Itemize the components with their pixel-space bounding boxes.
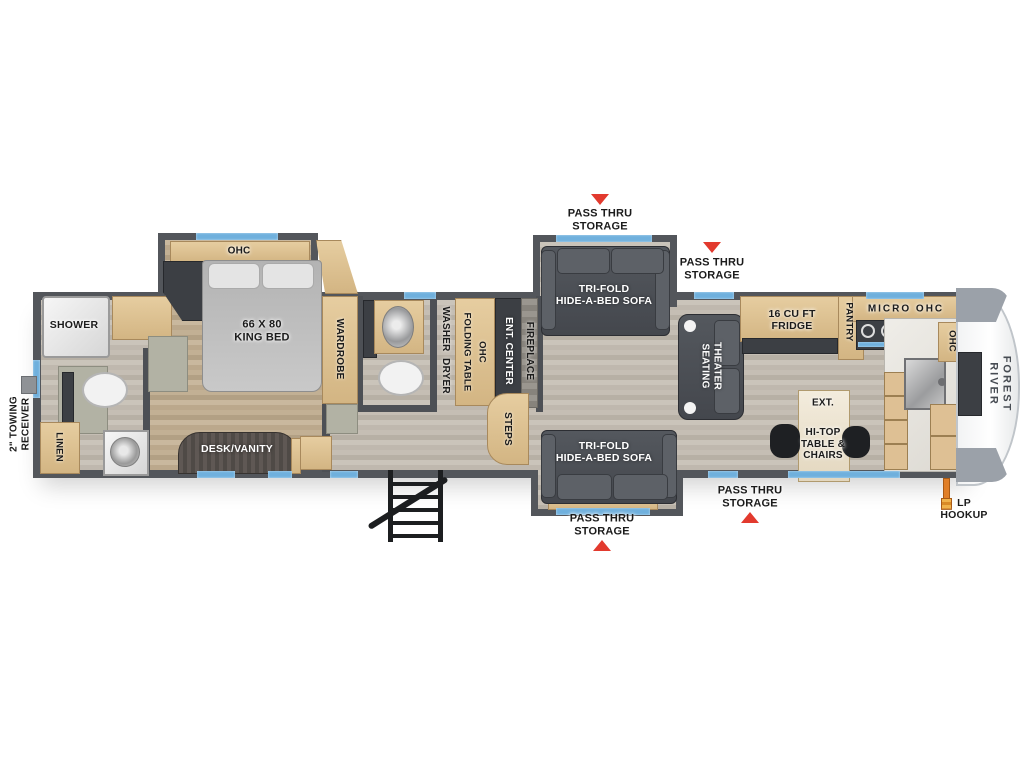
midbath-sink [382, 306, 414, 348]
window-bottom-3 [330, 471, 358, 478]
toilet-rear [82, 372, 128, 408]
label-lp-hookup: LP HOOKUP [940, 497, 987, 521]
theater-cupholder-bottom [684, 402, 696, 414]
sofa-bottom-back-right [613, 474, 668, 500]
label-fireplace: FIREPLACE [523, 322, 535, 380]
window-bottom-5 [788, 471, 900, 478]
sofa-top-back-left [557, 248, 610, 274]
label-theater-seating: THEATER SEATING [700, 342, 723, 390]
label-ent-center: ENT. CENTER [502, 317, 514, 385]
window-top-right-1 [694, 292, 734, 299]
label-pantry: PANTRY [843, 302, 854, 341]
label-folding-table: FOLDING TABLE [461, 313, 472, 392]
window-bottom-1 [197, 471, 235, 478]
label-king-bed: 66 X 80 KING BED [234, 318, 289, 343]
entry-steps-rung-5 [390, 534, 441, 538]
label-desk-vanity: DESK/VANITY [201, 443, 273, 455]
window-bottom-2 [268, 471, 292, 478]
burner-1 [861, 324, 875, 338]
label-pass-thru-bottom-right: PASS THRU STORAGE [718, 484, 783, 509]
label-micro-ohc: MICRO OHC [868, 303, 944, 315]
desk-end-panel [291, 438, 301, 474]
towing-receiver-hitch [21, 376, 37, 394]
fridge-base [742, 338, 838, 354]
label-pass-thru-bottom-center: PASS THRU STORAGE [570, 512, 635, 537]
sofa-top-back-right [611, 248, 664, 274]
kitchen-drawer-4 [884, 444, 908, 470]
sofa-top-arm-left [541, 250, 556, 330]
kitchen-faucet [938, 378, 946, 386]
window-sofa-slide-top [556, 235, 652, 242]
label-bedroom-ohc: OHC [228, 245, 251, 257]
toilet-mid [378, 360, 424, 396]
midbath-bottom-wall [356, 405, 437, 412]
label-shower: SHOWER [50, 319, 98, 331]
sofa-bottom-back-left [557, 474, 612, 500]
label-hitop-table: HI-TOP TABLE & CHAIRS [801, 427, 845, 462]
front-tv-cabinet [958, 352, 982, 416]
bath-cabinet [112, 296, 172, 340]
vanity-mirror [62, 372, 74, 426]
bedroom-corner-wardrobe [316, 240, 358, 294]
bedroom-dresser [148, 336, 188, 392]
window-bed-slide [196, 233, 278, 240]
hitop-chair-left [770, 424, 800, 458]
window-top-right-2 [866, 292, 924, 299]
midbath-right-wall [430, 296, 437, 412]
label-fridge: 16 CU FT FRIDGE [768, 308, 815, 332]
window-midbath-top [404, 292, 436, 299]
floorplan-canvas: PASS THRU STORAGE PASS THRU STORAGE PASS… [0, 0, 1024, 768]
window-bottom-4 [708, 471, 738, 478]
kitchen-drawer-3 [884, 420, 908, 444]
label-washer: WASHER [439, 306, 451, 351]
label-pass-thru-top-right: PASS THRU STORAGE [680, 256, 745, 281]
arrow-down-icon [591, 194, 609, 205]
label-dryer: DRYER [439, 358, 451, 394]
bedroom-bench [300, 436, 332, 470]
label-steps: STEPS [501, 412, 513, 446]
brand-logo-text: FOREST RIVER [987, 356, 1012, 413]
label-ext: EXT. [812, 397, 834, 409]
sofa-bottom-arm-left [541, 434, 556, 498]
arrow-up-icon [741, 512, 759, 523]
label-kitchen-ohc: OHC [946, 330, 957, 352]
label-wardrobe: WARDROBE [333, 318, 345, 379]
label-towing-receiver: 2" TOWING RECEIVER [9, 396, 32, 452]
label-linen: LINEN [53, 432, 64, 462]
entry-steps-rail-left [388, 470, 393, 542]
pillow-right [262, 263, 314, 289]
bath-sink [110, 437, 140, 467]
arrow-up-icon [593, 540, 611, 551]
hitop-chair-right [842, 426, 870, 458]
theater-cupholder-top [684, 320, 696, 332]
arrow-down-icon [703, 242, 721, 253]
label-utility-ohc: OHC [476, 341, 487, 363]
entry-steps-rung-4 [390, 521, 441, 525]
label-pass-thru-top-left: PASS THRU STORAGE [568, 207, 633, 232]
bedroom-side-cabinet [326, 404, 358, 434]
label-sofa-top: TRI-FOLD HIDE-A-BED SOFA [556, 283, 652, 307]
pillow-left [208, 263, 260, 289]
label-sofa-bottom: TRI-FOLD HIDE-A-BED SOFA [556, 440, 652, 464]
